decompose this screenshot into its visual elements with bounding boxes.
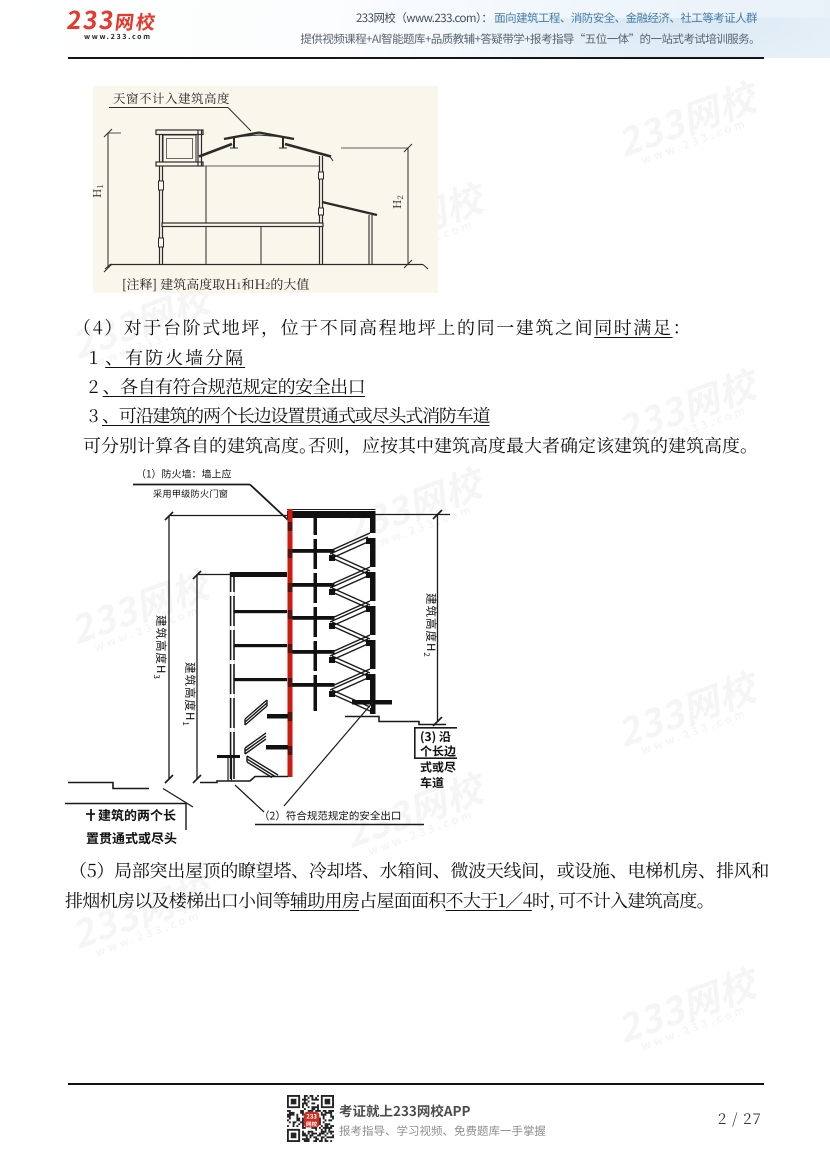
- svg-text:建筑高度H3: 建筑高度H3: [151, 615, 169, 680]
- svg-text:（1）防火墙：墙上应: （1）防火墙：墙上应: [136, 466, 232, 481]
- svg-text:采用甲级防火门窗: 采用甲级防火门窗: [153, 486, 228, 500]
- svg-text:网校: 网校: [306, 1120, 318, 1128]
- svg-text:车道: 车道: [420, 774, 444, 791]
- svg-text:天窗不计入建筑高度: 天窗不计入建筑高度: [113, 89, 230, 107]
- svg-text:H1: H1: [93, 184, 106, 198]
- svg-text:建筑高度H2: 建筑高度H2: [421, 593, 439, 658]
- svg-text:建筑的两个长: 建筑的两个长: [98, 805, 176, 824]
- svg-text:置贯通式或尽头: 置贯通式或尽头: [86, 828, 177, 847]
- svg-text:个长边: 个长边: [420, 743, 456, 760]
- svg-text:建筑高度H1: 建筑高度H1: [180, 662, 198, 727]
- svg-text:式或尽: 式或尽: [420, 759, 456, 776]
- svg-text:（2）符合规范规定的安全出口: （2）符合规范规定的安全出口: [259, 809, 401, 824]
- svg-text:[注释] 建筑高度取H1和H2的大值: [注释] 建筑高度取H1和H2的大值: [122, 274, 309, 293]
